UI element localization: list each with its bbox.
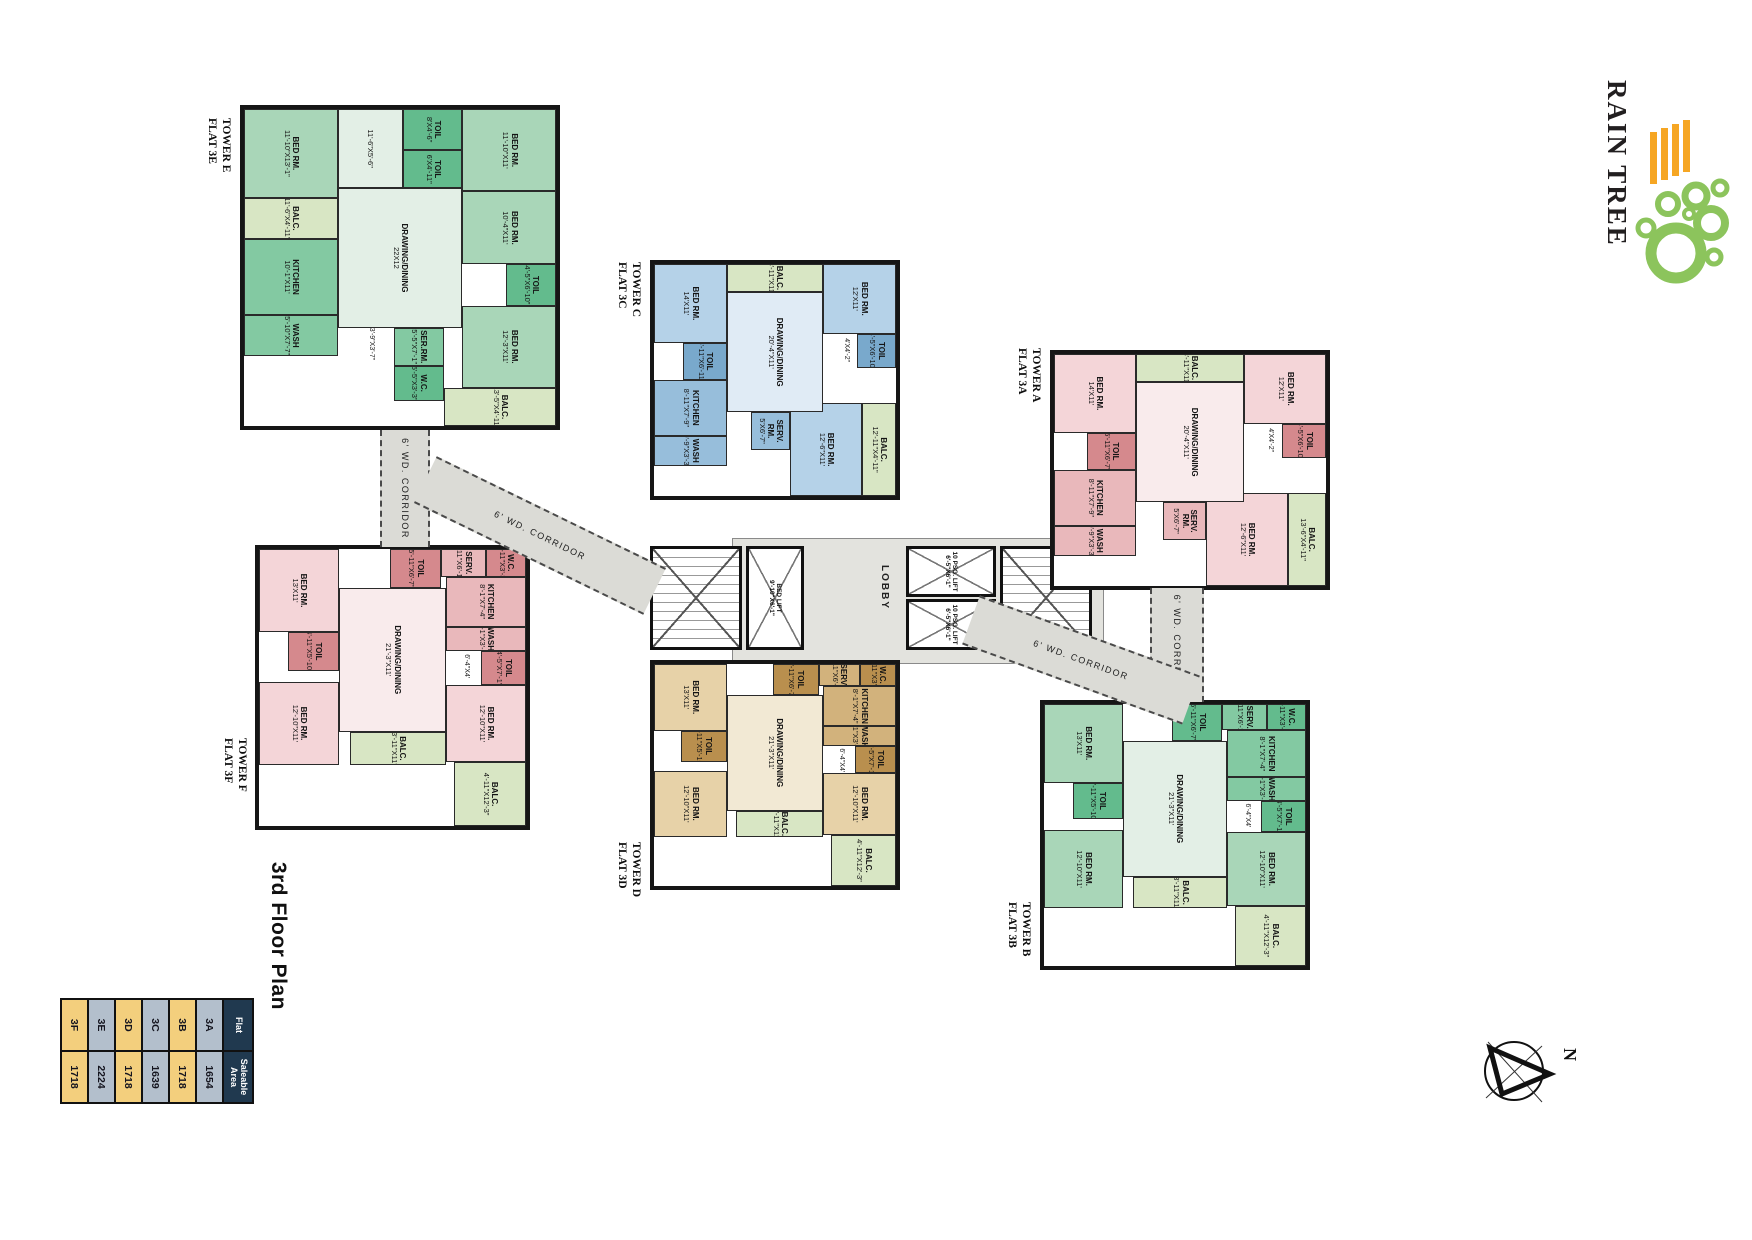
room-dimension: 4'-5"X7'-1" bbox=[867, 746, 875, 773]
room-dimension: 12'-6"X11' bbox=[817, 433, 825, 466]
room-dimension: 13'X11' bbox=[291, 579, 299, 603]
room-name: BALC. bbox=[500, 395, 509, 419]
room-name: TOIL bbox=[1304, 432, 1313, 450]
room-bed-rm: BED RM.12'-10"X11' bbox=[259, 682, 339, 765]
room-toil: TOIL8'X4'-6" bbox=[403, 109, 462, 150]
room-dimension: 8'-1"X3'-8" bbox=[851, 726, 859, 746]
room-dimension: 5'-10"X7'-7" bbox=[282, 316, 290, 355]
lift-label: BED LIFT bbox=[775, 583, 782, 612]
rain-tree-icon bbox=[1634, 120, 1734, 295]
room-bed-rm: BED RM.13'X11' bbox=[654, 664, 727, 731]
room-name: TOIL bbox=[1283, 808, 1292, 826]
room-wash: WASH8'-1"X3'-8" bbox=[1227, 777, 1306, 801]
room-dimension: 5'-11"X6'-7" bbox=[1189, 704, 1197, 741]
area-table-row-3E: 3E2224 bbox=[88, 999, 115, 1103]
room-name: TOIL bbox=[531, 276, 540, 294]
room-dimension: 3'-11"X11' bbox=[1182, 354, 1190, 382]
room-name: WASH bbox=[690, 439, 699, 463]
room-dimension: 12'X11' bbox=[1277, 377, 1285, 401]
room-name: BED RM. bbox=[291, 136, 300, 170]
flat-name: FLAT 3B bbox=[1004, 902, 1018, 956]
room-name: DRAWING/DINING bbox=[1190, 408, 1199, 477]
room-name: DRAWING/DINING bbox=[392, 625, 401, 694]
compass-icon bbox=[1474, 1032, 1558, 1110]
room-bed-rm: BED RM.12'-10"X11' bbox=[1044, 830, 1123, 909]
room-dimension: 5'-11"X6'-7" bbox=[407, 549, 415, 588]
room-balc: BALC.13'-6"X4'-11" bbox=[1288, 493, 1326, 586]
tower-D-plan: W.C.4'-11"X3'-3"SERV.4'-11"X6'-11"KITCHE… bbox=[650, 660, 900, 890]
room-name: DRAWING/DINING bbox=[775, 718, 784, 787]
passage-dimension: 6'-4"X4' bbox=[1244, 804, 1251, 828]
room-name: TOIL bbox=[876, 342, 885, 360]
room-dimension: 12'-10"X11' bbox=[851, 785, 859, 823]
room-name: BALC. bbox=[879, 437, 888, 461]
room-dimension: 9'-9"X3'-3" bbox=[682, 436, 690, 466]
room-dimension: 21'-3"X11' bbox=[384, 643, 392, 676]
room-wash: WASH9'-9"X3'-3" bbox=[654, 436, 727, 466]
tree-trunk-rays bbox=[1650, 120, 1690, 184]
room-bed-rm: BED RM.11'-10"X13'-1" bbox=[244, 109, 338, 198]
room-toil: TOIL4'-5"X7'-1" bbox=[855, 746, 896, 773]
room-name: BALC. bbox=[490, 782, 499, 806]
room-toil: TOIL5'-11"X6'-11" bbox=[683, 343, 727, 380]
room-dimension: 12'-10"X11' bbox=[1258, 850, 1266, 888]
room-toil: TOIL4'-5"X6'-10" bbox=[506, 264, 556, 305]
staircase-lower bbox=[650, 546, 742, 650]
logo-text: RAIN TREE bbox=[1601, 80, 1632, 247]
room-dimension: 22X12 bbox=[392, 247, 400, 269]
room-kitchen: KITCHEN10'-1"X11' bbox=[244, 239, 338, 315]
room-name: BED RM. bbox=[509, 133, 518, 167]
room-name: BED RM. bbox=[509, 211, 518, 245]
room-name: KITCHEN bbox=[1266, 736, 1275, 772]
rain-tree-logo: RAIN TREE bbox=[1589, 80, 1734, 295]
room-dimension: 5'X6'-7" bbox=[758, 418, 766, 444]
room-dimension: 4'-5"X6'-10" bbox=[868, 334, 876, 369]
room-dimension: 3'-11"X11' bbox=[1172, 877, 1180, 908]
area-table-row-3C: 3C1639 bbox=[142, 999, 169, 1103]
room-toil: TOIL4'-11"X5'-10" bbox=[1073, 783, 1123, 820]
room-dimension: 10'-4"X11' bbox=[501, 211, 509, 244]
tower-name: TOWER F bbox=[234, 738, 248, 792]
flat-cell: 3A bbox=[196, 999, 223, 1051]
room-dimension: 4'-11"X6'-11" bbox=[1236, 704, 1244, 730]
room-name: TOIL bbox=[1197, 713, 1206, 731]
passage-dimension: 4'X4'-2" bbox=[843, 338, 850, 362]
room-dimension: 5'-11"X6'-7" bbox=[787, 664, 795, 695]
area-cell: 2224 bbox=[88, 1051, 115, 1103]
flat-cell: 3C bbox=[142, 999, 169, 1051]
room-serv: SERV.4'-11"X6'-11" bbox=[1222, 704, 1267, 730]
room-balc: BALC.3'-11"X11' bbox=[736, 811, 823, 838]
room-name: BED RM. bbox=[1095, 377, 1104, 411]
tower-label-C: TOWER CFLAT 3C bbox=[614, 262, 642, 317]
room-bed-rm: BED RM.12'X11' bbox=[1244, 354, 1326, 424]
room-name: WASH bbox=[859, 726, 868, 746]
room-name: BALC. bbox=[1307, 527, 1316, 551]
room-dimension: 6'X4'-11" bbox=[424, 155, 432, 184]
room-balc: BALC.11'-6"X4'-11" bbox=[244, 198, 338, 239]
area-table-row-3D: 3D1718 bbox=[115, 999, 142, 1103]
room-toil: TOIL4'-5"X6'-10" bbox=[857, 334, 896, 369]
room-dimension: 5'-11"X6'-11" bbox=[696, 343, 704, 380]
room-dimension: 14'X11' bbox=[682, 291, 690, 315]
room-name: BALC. bbox=[780, 812, 789, 836]
room-balc: BALC.3'-11"X11' bbox=[350, 732, 446, 765]
room-kitchen: KITCHEN8'-1"X7'-4" bbox=[446, 577, 526, 627]
room-bed-rm: BED RM.12'X11' bbox=[823, 264, 896, 334]
tower-name: TOWER A bbox=[1028, 348, 1042, 402]
lift-dim: 9'-10"X6'-1" bbox=[768, 580, 775, 616]
room-dimension: 21'-3"X11' bbox=[1167, 792, 1175, 825]
room-name: TOIL bbox=[795, 671, 804, 689]
room-name: SERV. bbox=[1244, 706, 1253, 729]
room-dimension: 8'-1"X7'-4" bbox=[478, 584, 486, 619]
room-name: BED RM. bbox=[1285, 372, 1294, 406]
room-dimension: 11'-10"X13'-1" bbox=[282, 130, 290, 177]
room-name: DRAWING/DINING bbox=[1175, 774, 1184, 843]
area-table-row-3F: 3F1718 bbox=[61, 999, 88, 1103]
passage-dimension: 6'-4"X4' bbox=[838, 748, 845, 772]
room-drawing-dining: DRAWING/DINING22X12 bbox=[338, 188, 463, 327]
room-name: SERV. bbox=[839, 664, 848, 686]
room-dimension: 12'-6"X11' bbox=[1239, 523, 1247, 556]
passage-dimension: 4'X4'-2" bbox=[1267, 428, 1274, 452]
tower-name: TOWER B bbox=[1018, 902, 1032, 956]
room-dimension: 9'-9"X3'-3" bbox=[1086, 526, 1094, 556]
lift-label: 10 PSG. LIFT bbox=[951, 604, 958, 644]
room-toil: TOIL6'X4'-11" bbox=[403, 150, 462, 188]
room-balc: BALC.12'-11"X4'-11" bbox=[862, 403, 896, 496]
room-drawing-dining: DRAWING/DINING20'-4"X11' bbox=[727, 292, 824, 413]
flat-name: FLAT 3A bbox=[1014, 348, 1028, 402]
room-balc: BALC.3'-11"X11' bbox=[727, 264, 824, 292]
room-toil: TOIL4'-11"X5'-10" bbox=[288, 632, 339, 671]
room-name: DRAWING/DINING bbox=[400, 224, 409, 293]
flat-cell: 3B bbox=[169, 999, 196, 1051]
room-w-c: W.C.4'-11"X3'-3" bbox=[860, 664, 896, 686]
room-wash: WASH9'-9"X3'-3" bbox=[1054, 526, 1136, 556]
lobby-label: LOBBY bbox=[879, 565, 890, 610]
room-dimension: 12'X11' bbox=[851, 287, 859, 311]
lift-label: 10 PSG. LIFT bbox=[951, 551, 958, 591]
room-bed-rm: BED RM.13'X11' bbox=[1044, 704, 1123, 783]
room-balc: BALC.13'-5"X4'-11" bbox=[444, 388, 556, 426]
room-toil: TOIL5'-11"X6'-7" bbox=[773, 664, 819, 695]
north-label: N bbox=[1559, 1048, 1580, 1061]
room-dimension: 11'-6"X4'-11" bbox=[282, 198, 290, 239]
room-dimension: 3'-11"X11' bbox=[772, 811, 780, 838]
room-name: BED RM. bbox=[1083, 852, 1092, 886]
room-name: TOIL bbox=[433, 121, 442, 139]
room-name: TOIL bbox=[1097, 792, 1106, 810]
room-name: BALC. bbox=[291, 206, 300, 230]
room-drawing-dining: DRAWING/DINING20'-4"X11' bbox=[1136, 382, 1245, 503]
floor-plan-sheet: RAIN TREE N 10 PSG. LIFT 6'-5"X6'-1" 10 … bbox=[0, 0, 1752, 1240]
room-wash: WASH8'-1"X3'-8" bbox=[823, 726, 896, 746]
room-name: W.C. bbox=[878, 666, 887, 683]
room-toil: TOIL4'-5"X6'-10" bbox=[1282, 424, 1326, 459]
room-bed-rm: BED RM.14'X11' bbox=[654, 264, 727, 343]
room-dimension: 3'-11"X11' bbox=[767, 264, 775, 292]
room-bed-rm: BED RM.12'-10"X11' bbox=[1227, 832, 1306, 905]
room-bed-rm: BED RM.12'-10"X11' bbox=[823, 773, 896, 835]
room-name: BED RM. bbox=[690, 787, 699, 821]
room-bed-rm: BED RM.10'-4"X11' bbox=[462, 191, 556, 264]
tower-B-plan: W.C.4'-11"X3'-3"SERV.4'-11"X6'-11"KITCHE… bbox=[1040, 700, 1310, 970]
room-bed-rm: BED RM.13'X11' bbox=[259, 549, 339, 632]
flat-cell: 3E bbox=[88, 999, 115, 1051]
tower-label-F: TOWER FFLAT 3F bbox=[220, 738, 248, 792]
room-dimension: 20'-4"X11' bbox=[1182, 425, 1190, 458]
room-name: WASH bbox=[1266, 777, 1275, 801]
area-table-body: 3A16543B17183C16393D17183E22243F1718 bbox=[61, 999, 223, 1103]
room-name: BED RM. bbox=[486, 707, 495, 741]
room-bed-rm: BED RM.12'-6"X11' bbox=[1206, 493, 1288, 586]
room-drawing-dining: DRAWING/DINING21'-3"X11' bbox=[1123, 741, 1228, 877]
room-balc: BALC.3'-11"X11' bbox=[1133, 877, 1227, 908]
tower-label-B: TOWER BFLAT 3B bbox=[1004, 902, 1032, 956]
lift-dim: 6'-5"X6'-1" bbox=[944, 608, 951, 640]
room-name: BED RM. bbox=[1247, 523, 1256, 557]
room-dimension: 12'-10"X11' bbox=[478, 705, 486, 743]
room-wash: WASH8'-1"X3'-8" bbox=[446, 627, 526, 652]
passage-dimension: 3'-9"X3'-7" bbox=[368, 328, 375, 361]
room-dimension: 13'-6"X4'-11" bbox=[1299, 518, 1307, 561]
room-dimension: 12'-10"X11' bbox=[291, 705, 299, 743]
flat-name: FLAT 3F bbox=[220, 738, 234, 792]
tree-canopy bbox=[1638, 181, 1727, 278]
room-dimension: 12'-11"X4'-11" bbox=[871, 426, 879, 472]
area-cell: 1718 bbox=[169, 1051, 196, 1103]
room-dimension: 14'X11' bbox=[1086, 381, 1094, 405]
room-w-c: W.C.4'-11"X3'-3" bbox=[1267, 704, 1306, 730]
room-bed-rm: BED RM.11'-10"X11' bbox=[462, 109, 556, 191]
room-dimension: 5'X6'-7" bbox=[1172, 508, 1180, 534]
tower-C-plan: BED RM.12'X11'TOIL4'-5"X6'-10"BED RM.12'… bbox=[650, 260, 900, 500]
room-balc: BALC.4'-11"X12'-3" bbox=[831, 835, 896, 886]
room-name: WASH bbox=[1095, 529, 1104, 553]
room-dimension: 20'-4"X11' bbox=[767, 335, 775, 368]
room-name: KITCHEN bbox=[291, 259, 300, 295]
room-dimension: 8'-1"X7'-4" bbox=[851, 689, 859, 724]
room-name: BALC. bbox=[775, 266, 784, 290]
room-dim: 11'-6"X5'-6" bbox=[338, 109, 404, 188]
room-bed-rm: BED RM.12'-3"X11' bbox=[462, 306, 556, 388]
tower-label-D: TOWER DFLAT 3D bbox=[614, 842, 642, 897]
saleable-area-header: Saleable Area bbox=[223, 1051, 253, 1103]
room-dimension: 10'-1"X11' bbox=[282, 260, 290, 293]
room-name: TOIL bbox=[703, 737, 712, 755]
room-serv: SERV.4'-11"X6'-11" bbox=[441, 549, 486, 577]
room-dimension: 4'-11"X5'-10" bbox=[1089, 783, 1097, 820]
room-dimension: 8'-1"X7'-4" bbox=[1258, 736, 1266, 771]
room-wash: WASH5'-10"X7'-7" bbox=[244, 315, 338, 356]
room-dimension: 12'-10"X11' bbox=[682, 785, 690, 823]
room-dimension: 5'-5"X7'-1" bbox=[410, 329, 418, 364]
room-toil: TOIL5'-11"X6'-7" bbox=[390, 549, 441, 588]
room-dimension: 4'-11"X3'-3" bbox=[1278, 704, 1286, 730]
bed-lift: BED LIFT 9'-10"X6'-1" bbox=[746, 546, 804, 650]
room-serv-rm: SERV. RM.5'X6'-7" bbox=[1163, 502, 1207, 539]
room-name: BALC. bbox=[1270, 924, 1279, 948]
room-dimension: 4'-5"X6'-10" bbox=[523, 265, 531, 304]
room-name: TOIL bbox=[313, 642, 322, 660]
room-name: W.C. bbox=[1286, 708, 1295, 725]
room-dimension: 4'-11"X3'-3" bbox=[498, 549, 506, 577]
room-dimension: 11'-10"X11' bbox=[501, 132, 509, 169]
room-bed-rm: BED RM.12'-10"X11' bbox=[446, 685, 526, 763]
room-dimension: 4'-11"X6'-11" bbox=[831, 664, 839, 686]
room-dimension: 12'-10"X11' bbox=[1075, 850, 1083, 888]
room-name: BED RM. bbox=[859, 282, 868, 316]
room-dimension: 13'-5"X4'-11" bbox=[491, 388, 499, 426]
tower-name: TOWER D bbox=[628, 842, 642, 897]
room-name: BED RM. bbox=[690, 680, 699, 714]
room-kitchen: KITCHEN8'-1"X7'-4" bbox=[823, 686, 896, 726]
room-dimension: 4'-5"X7'-1" bbox=[495, 651, 503, 684]
flat-header: Flat bbox=[223, 999, 253, 1051]
room-name: TOIL bbox=[503, 659, 512, 677]
room-name: BED RM. bbox=[826, 433, 835, 467]
room-name: TOIL bbox=[1111, 442, 1120, 460]
room-dimension: 13'X11' bbox=[682, 685, 690, 709]
room-name: W.C. bbox=[506, 554, 515, 571]
area-cell: 1718 bbox=[61, 1051, 88, 1103]
room-name: BED RM. bbox=[859, 787, 868, 821]
room-dimension: 8'X4'-6" bbox=[424, 117, 432, 143]
room-dimension: 5'-5"X3'-3" bbox=[410, 366, 418, 401]
room-bed-rm: BED RM.12'-6"X11' bbox=[790, 403, 863, 496]
room-name: BALC. bbox=[863, 848, 872, 872]
room-name: TOIL bbox=[705, 352, 714, 370]
room-dimension: 8'-11"X7'-9" bbox=[682, 389, 690, 428]
room-balc: BALC.4'-11"X12'-3" bbox=[454, 762, 526, 826]
room-name: WASH bbox=[486, 627, 495, 651]
room-name: BALC. bbox=[1190, 356, 1199, 380]
room-serv: SERV.4'-11"X6'-11" bbox=[819, 664, 860, 686]
room-dimension: 3'-11"X11' bbox=[390, 732, 398, 765]
room-name: BED RM. bbox=[1083, 726, 1092, 760]
room-dimension: 4'-11"X12'-3" bbox=[1262, 915, 1270, 958]
room-w-c: W.C.5'-5"X3'-3" bbox=[394, 366, 444, 401]
room-name: WASH bbox=[291, 324, 300, 348]
room-toil: TOIL4'-11"X5'-10" bbox=[681, 731, 727, 762]
room-dimension: 4'-11"X5'-10" bbox=[305, 632, 313, 671]
room-drawing-dining: DRAWING/DINING21'-3"X11' bbox=[727, 695, 824, 810]
room-dimension: 11'-6"X5'-6" bbox=[366, 129, 374, 168]
room-toil: TOIL5'-11"X6'-7" bbox=[1087, 433, 1136, 470]
flat-name: FLAT 3E bbox=[204, 118, 218, 172]
area-table-row-3A: 3A1654 bbox=[196, 999, 223, 1103]
area-cell: 1639 bbox=[142, 1051, 169, 1103]
tower-label-A: TOWER AFLAT 3A bbox=[1014, 348, 1042, 402]
passage-dimension: 6'-4"X4' bbox=[463, 654, 470, 678]
room-balc: BALC.4'-11"X12'-3" bbox=[1235, 906, 1306, 966]
room-dimension: 21'-3"X11' bbox=[767, 736, 775, 769]
room-ser-rm: SER.RM.5'-5"X7'-1" bbox=[394, 328, 444, 366]
room-name: BED RM. bbox=[1266, 852, 1275, 886]
area-table-header-row: Flat Saleable Area bbox=[223, 999, 253, 1103]
room-dimension: 5'-11"X6'-7" bbox=[1103, 433, 1111, 470]
room-name: SER.RM. bbox=[418, 330, 427, 363]
tower-E-plan: BED RM.11'-10"X11'BED RM.10'-4"X11'TOIL4… bbox=[240, 105, 560, 430]
room-name: TOIL bbox=[875, 750, 884, 768]
room-name: SERV. RM. bbox=[766, 414, 783, 447]
area-cell: 1654 bbox=[196, 1051, 223, 1103]
room-name: SERV. bbox=[463, 551, 472, 574]
room-dimension: 4'-5"X7'-1" bbox=[1275, 801, 1283, 832]
room-kitchen: KITCHEN8'-11"X7'-9" bbox=[654, 380, 727, 436]
room-name: KITCHEN bbox=[486, 584, 495, 620]
tower-name: TOWER E bbox=[218, 118, 232, 172]
room-name: TOIL bbox=[433, 160, 442, 178]
room-bed-rm: BED RM.12'-10"X11' bbox=[654, 771, 727, 838]
room-dimension: 4'-11"X12'-3" bbox=[855, 839, 863, 882]
room-balc: BALC.3'-11"X11' bbox=[1136, 354, 1245, 382]
room-kitchen: KITCHEN8'-1"X7'-4" bbox=[1227, 730, 1306, 777]
room-toil: TOIL4'-5"X7'-1" bbox=[1261, 801, 1306, 832]
room-name: KITCHEN bbox=[859, 688, 868, 724]
flat-name: FLAT 3C bbox=[614, 262, 628, 317]
lift-dim: 6'-5"X6'-1" bbox=[944, 555, 951, 587]
flat-cell: 3F bbox=[61, 999, 88, 1051]
tower-F-plan: W.C.4'-11"X3'-3"SERV.4'-11"X6'-11"KITCHE… bbox=[255, 545, 530, 830]
room-toil: TOIL4'-5"X7'-1" bbox=[481, 651, 526, 684]
saleable-area-table: Flat Saleable Area 3A16543B17183C16393D1… bbox=[60, 998, 254, 1104]
north-compass: N bbox=[1468, 1030, 1580, 1122]
room-name: DRAWING/DINING bbox=[775, 318, 784, 387]
passenger-lift-1: 10 PSG. LIFT 6'-5"X6'-1" bbox=[906, 546, 996, 597]
room-dimension: 4'-5"X6'-10" bbox=[1296, 424, 1304, 459]
room-name: KITCHEN bbox=[1095, 480, 1104, 516]
room-kitchen: KITCHEN8'-11"X7'-9" bbox=[1054, 470, 1136, 526]
room-drawing-dining: DRAWING/DINING21'-3"X11' bbox=[339, 588, 446, 732]
area-table-row-3B: 3B1718 bbox=[169, 999, 196, 1103]
room-name: BED RM. bbox=[299, 574, 308, 608]
room-bed-rm: BED RM.14'X11' bbox=[1054, 354, 1136, 433]
tower-A-plan: BED RM.12'X11'TOIL4'-5"X6'-10"BED RM.12'… bbox=[1050, 350, 1330, 590]
room-dimension: 4'-11"X6'-11" bbox=[455, 549, 463, 577]
room-dimension: 8'-11"X7'-9" bbox=[1086, 479, 1094, 518]
room-name: TOIL bbox=[415, 559, 424, 577]
room-name: BED RM. bbox=[299, 707, 308, 741]
room-name: KITCHEN bbox=[690, 390, 699, 426]
tower-name: TOWER C bbox=[628, 262, 642, 317]
room-dimension: 13'X11' bbox=[1075, 731, 1083, 755]
room-dimension: 4'-11"X5'-10" bbox=[695, 731, 703, 762]
area-cell: 1718 bbox=[115, 1051, 142, 1103]
room-name: W.C. bbox=[418, 375, 427, 392]
room-dimension: 12'-3"X11' bbox=[501, 330, 509, 363]
room-name: BED RM. bbox=[690, 287, 699, 321]
room-name: SERV. RM. bbox=[1180, 504, 1197, 537]
room-name: BALC. bbox=[1180, 880, 1189, 904]
room-dimension: 4'-11"X12'-3" bbox=[482, 773, 490, 816]
flat-cell: 3D bbox=[115, 999, 142, 1051]
room-name: BALC. bbox=[398, 736, 407, 760]
tower-label-E: TOWER EFLAT 3E bbox=[204, 118, 232, 172]
flat-name: FLAT 3D bbox=[614, 842, 628, 897]
corridor-label: 6' WD. CORRIDOR bbox=[400, 438, 410, 539]
room-name: BED RM. bbox=[509, 330, 518, 364]
room-dimension: 8'-1"X3'-8" bbox=[478, 627, 486, 652]
room-dimension: 8'-1"X3'-8" bbox=[1258, 777, 1266, 801]
room-dimension: 4'-11"X3'-3" bbox=[870, 664, 878, 686]
corridor-label: 6' WD. CORRIDOR bbox=[1032, 638, 1130, 682]
room-serv-rm: SERV. RM.5'X6'-7" bbox=[751, 412, 790, 449]
